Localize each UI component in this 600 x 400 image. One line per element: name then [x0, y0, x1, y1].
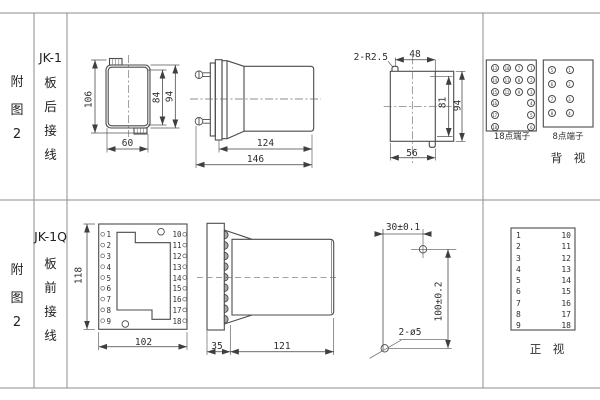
map-terminal-number: 15	[549, 287, 571, 296]
map-terminal-number: 3	[516, 254, 521, 263]
mounting-hole-icon	[122, 321, 129, 328]
figure-label-char: 附	[10, 259, 23, 278]
map-terminal-number: 14	[549, 276, 571, 285]
model-label: JK-1Q	[34, 229, 67, 244]
circled-terminal: 8	[515, 76, 523, 84]
circled-terminal: 18	[491, 123, 499, 131]
dim-100-label: 100±0.2	[434, 276, 445, 326]
map-terminal-number: 4	[516, 265, 521, 274]
circled-terminal: 15	[491, 88, 499, 96]
terminal8-caption: 8点端子	[543, 132, 593, 142]
relay-dimension-drawing-sheet: 附 图 2 JK-1 板 后 接 线 附 图 2 JK-1Q 板 前 接 线 1…	[0, 0, 600, 400]
terminal-number: 11	[169, 241, 182, 250]
front-view-label: 正 视	[522, 343, 572, 356]
circled-terminal: 10	[503, 64, 511, 72]
map-terminal-number: 13	[549, 265, 571, 274]
circled-terminal: 17	[491, 111, 499, 119]
wiring-label-char: 后	[44, 96, 57, 115]
map-terminal-number: 8	[516, 310, 521, 319]
map-terminal-number: 17	[549, 310, 571, 319]
dim-30-label: 30±0.1	[380, 222, 426, 233]
jk1q-side-view	[197, 223, 337, 355]
circled-terminal: 14	[491, 76, 499, 84]
circled-terminal: 1	[566, 66, 574, 74]
circled-terminal: 3	[527, 88, 535, 96]
map-terminal-number: 6	[516, 287, 521, 296]
figure-label-column-bottom: 附 图 2	[0, 200, 34, 388]
circled-terminal: 7	[548, 95, 556, 103]
circled-terminal: 11	[503, 76, 511, 84]
terminal-number: 9	[107, 317, 112, 326]
map-terminal-number: 7	[516, 299, 521, 308]
terminal-number: 7	[107, 295, 112, 304]
map-terminal-number: 16	[549, 299, 571, 308]
dim-121-label: 121	[270, 341, 294, 352]
figure-label-column-top: 附 图 2	[0, 13, 34, 200]
dim-81-label: 81	[437, 92, 448, 112]
dim-84-label: 84	[152, 88, 163, 108]
map-terminal-number: 10	[549, 231, 571, 240]
wiring-label-char: 接	[44, 301, 57, 320]
figure-label-char: 2	[13, 315, 21, 330]
wiring-label-char: 接	[44, 120, 57, 139]
wiring-label-char: 前	[44, 277, 57, 296]
circled-terminal: 13	[491, 64, 499, 72]
circled-terminal: 7	[515, 64, 523, 72]
terminal-number: 10	[169, 230, 182, 239]
dim-124-label: 124	[253, 138, 279, 149]
map-terminal-number: 18	[549, 321, 571, 330]
dim-94-cutout-label: 94	[452, 96, 463, 116]
dim-146-label: 146	[243, 154, 269, 165]
terminal-number: 18	[169, 317, 182, 326]
circled-terminal: 3	[566, 95, 574, 103]
dim-118-label: 118	[74, 263, 85, 287]
circled-terminal: 9	[515, 88, 523, 96]
dim-35-label: 35	[208, 341, 226, 352]
dim-56-label: 56	[402, 148, 422, 159]
dim-106-label: 106	[83, 87, 94, 111]
circled-terminal: 8	[548, 109, 556, 117]
terminal-number: 16	[169, 295, 182, 304]
terminal-number: 17	[169, 306, 182, 315]
terminal-number: 14	[169, 274, 182, 283]
dim-94-label: 94	[165, 87, 176, 107]
circled-terminal: 4	[566, 109, 574, 117]
wiring-label-char: 线	[44, 325, 57, 344]
hole-spec-label: 2-ø5	[392, 327, 428, 338]
figure-label-char: 2	[13, 127, 21, 142]
circled-terminal: 12	[503, 88, 511, 96]
terminal-number: 15	[169, 284, 182, 293]
wiring-label-char: 板	[44, 253, 57, 272]
figure-label-char: 图	[10, 287, 23, 306]
circled-terminal: 5	[548, 66, 556, 74]
terminal-number: 3	[107, 252, 112, 261]
model-label: JK-1	[39, 50, 62, 65]
map-terminal-number: 11	[549, 242, 571, 251]
terminal-number: 12	[169, 252, 182, 261]
terminal-number: 1	[107, 230, 112, 239]
terminal18-caption: 18点端子	[486, 132, 538, 142]
model-label-column-top: JK-1 板 后 接 线	[34, 13, 67, 200]
terminal-number: 5	[107, 274, 112, 283]
circled-terminal: 2	[566, 80, 574, 88]
terminal-number: 2	[107, 241, 112, 250]
map-terminal-number: 1	[516, 231, 521, 240]
map-terminal-number: 5	[516, 276, 521, 285]
model-label-column-bottom: JK-1Q 板 前 接 线	[34, 200, 67, 388]
terminal-number: 6	[107, 284, 112, 293]
jk1-side-view	[190, 60, 321, 168]
map-terminal-number: 2	[516, 242, 521, 251]
terminal-number: 13	[169, 263, 182, 272]
terminal-number: 4	[107, 263, 112, 272]
rear-view-label: 背 视	[543, 152, 593, 165]
map-terminal-number: 9	[516, 321, 521, 330]
slot-radius-label: 2-R2.5	[340, 52, 388, 63]
dim-102-label: 102	[132, 337, 156, 348]
wiring-label-char: 板	[44, 72, 57, 91]
dim-48-label: 48	[405, 49, 425, 60]
drawing-linework	[0, 0, 600, 400]
figure-label-char: 附	[10, 71, 23, 90]
terminal-number: 8	[107, 306, 112, 315]
dim-60-label: 60	[118, 138, 138, 149]
figure-label-char: 图	[10, 99, 23, 118]
mounting-hole-icon	[158, 228, 165, 235]
map-terminal-number: 12	[549, 254, 571, 263]
wiring-label-char: 线	[44, 144, 57, 163]
